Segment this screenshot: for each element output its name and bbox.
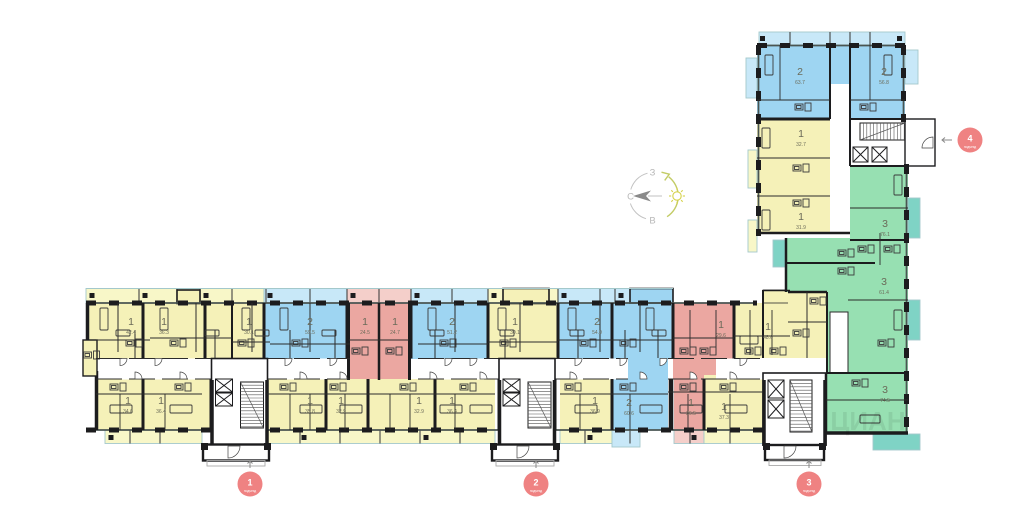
svg-text:4: 4 xyxy=(967,134,972,144)
svg-text:48.6: 48.6 xyxy=(763,335,773,341)
svg-text:1: 1 xyxy=(512,316,518,328)
svg-text:3: 3 xyxy=(881,276,887,288)
svg-text:З: З xyxy=(650,168,656,179)
svg-text:76.1: 76.1 xyxy=(880,232,890,238)
svg-text:1: 1 xyxy=(416,395,422,407)
svg-text:26.5: 26.5 xyxy=(686,411,696,417)
svg-text:32.9: 32.9 xyxy=(336,409,346,415)
svg-text:37.3: 37.3 xyxy=(719,415,729,421)
svg-text:1: 1 xyxy=(688,397,694,409)
svg-text:56.8: 56.8 xyxy=(879,80,889,86)
svg-text:31.9: 31.9 xyxy=(796,225,806,231)
svg-text:В: В xyxy=(649,216,655,227)
svg-text:3: 3 xyxy=(806,478,811,488)
svg-text:подъезд: подъезд xyxy=(803,489,815,493)
svg-text:1: 1 xyxy=(392,316,398,328)
svg-text:36.9: 36.9 xyxy=(590,409,600,415)
svg-text:1: 1 xyxy=(161,316,167,328)
svg-text:1: 1 xyxy=(246,316,252,328)
svg-text:2: 2 xyxy=(881,66,887,78)
svg-text:С: С xyxy=(627,192,634,203)
svg-text:51.2: 51.2 xyxy=(447,330,457,336)
svg-text:74.5: 74.5 xyxy=(880,398,890,404)
svg-text:1: 1 xyxy=(247,478,252,488)
svg-text:2: 2 xyxy=(533,478,538,488)
svg-text:34.6: 34.6 xyxy=(123,409,133,415)
svg-text:61.4: 61.4 xyxy=(879,290,889,296)
svg-text:54.9: 54.9 xyxy=(592,330,602,336)
svg-text:2: 2 xyxy=(797,66,803,78)
svg-text:1: 1 xyxy=(128,316,134,328)
svg-text:1: 1 xyxy=(798,211,804,223)
svg-text:1: 1 xyxy=(307,395,313,407)
svg-text:1: 1 xyxy=(362,316,368,328)
svg-text:30.1: 30.1 xyxy=(510,330,520,336)
svg-text:60.6: 60.6 xyxy=(624,411,634,417)
svg-text:ЦИАН: ЦИАН xyxy=(830,406,905,436)
svg-text:1: 1 xyxy=(125,395,131,407)
svg-text:2: 2 xyxy=(449,316,455,328)
svg-text:36.3: 36.3 xyxy=(159,330,169,336)
svg-text:24.7: 24.7 xyxy=(390,330,400,336)
svg-text:1: 1 xyxy=(338,395,344,407)
svg-text:1: 1 xyxy=(718,319,724,331)
svg-text:35.8: 35.8 xyxy=(305,409,315,415)
svg-text:24.5: 24.5 xyxy=(360,330,370,336)
svg-text:59.5: 59.5 xyxy=(305,330,315,336)
svg-text:32.9: 32.9 xyxy=(414,409,424,415)
svg-text:2: 2 xyxy=(594,316,600,328)
svg-text:36.4: 36.4 xyxy=(156,409,166,415)
svg-text:29.6: 29.6 xyxy=(716,333,726,339)
svg-text:1: 1 xyxy=(798,128,804,140)
svg-text:1: 1 xyxy=(765,321,771,333)
svg-text:1: 1 xyxy=(721,401,727,413)
svg-text:3: 3 xyxy=(882,384,888,396)
svg-text:1: 1 xyxy=(449,395,455,407)
svg-text:3: 3 xyxy=(882,218,888,230)
svg-text:30.1: 30.1 xyxy=(244,330,254,336)
svg-text:32.7: 32.7 xyxy=(796,142,806,148)
svg-text:подъезд: подъезд xyxy=(964,145,976,149)
svg-text:2: 2 xyxy=(626,397,632,409)
svg-text:подъезд: подъезд xyxy=(244,489,256,493)
svg-text:1: 1 xyxy=(592,395,598,407)
svg-text:подъезд: подъезд xyxy=(530,489,542,493)
svg-text:1: 1 xyxy=(158,395,164,407)
svg-text:36.4: 36.4 xyxy=(447,409,457,415)
svg-text:42.4: 42.4 xyxy=(126,330,136,336)
svg-text:2: 2 xyxy=(307,316,313,328)
svg-text:63.7: 63.7 xyxy=(795,80,805,86)
